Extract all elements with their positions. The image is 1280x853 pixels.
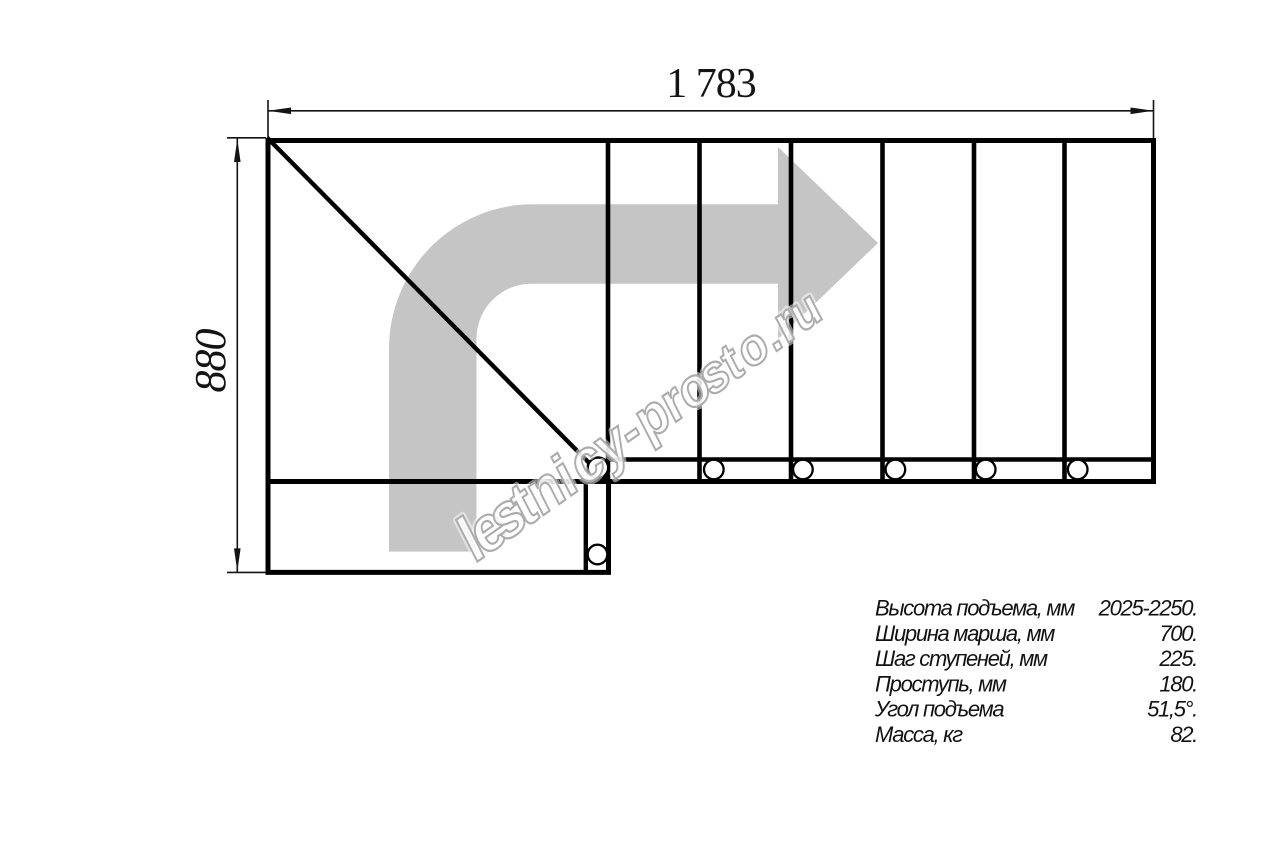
svg-text:1 783: 1 783 [666,61,756,107]
svg-text:225.: 225. [1158,646,1197,671]
svg-text:82.: 82. [1170,722,1197,747]
svg-text:Проступь, мм: Проступь, мм [875,671,1007,696]
svg-text:880: 880 [186,329,235,393]
svg-text:2025-2250.: 2025-2250. [1098,596,1197,621]
svg-text:Масса, кг: Масса, кг [875,722,963,747]
svg-text:180.: 180. [1159,671,1197,696]
svg-text:700.: 700. [1159,621,1197,646]
svg-text:Угол подъема: Угол подъема [874,697,1004,722]
svg-text:Высота подъема, мм: Высота подъема, мм [875,596,1075,621]
svg-text:51,5°.: 51,5°. [1147,697,1197,722]
svg-text:Шаг ступеней, мм: Шаг ступеней, мм [875,646,1048,671]
svg-text:Ширина марша, мм: Ширина марша, мм [875,621,1055,646]
